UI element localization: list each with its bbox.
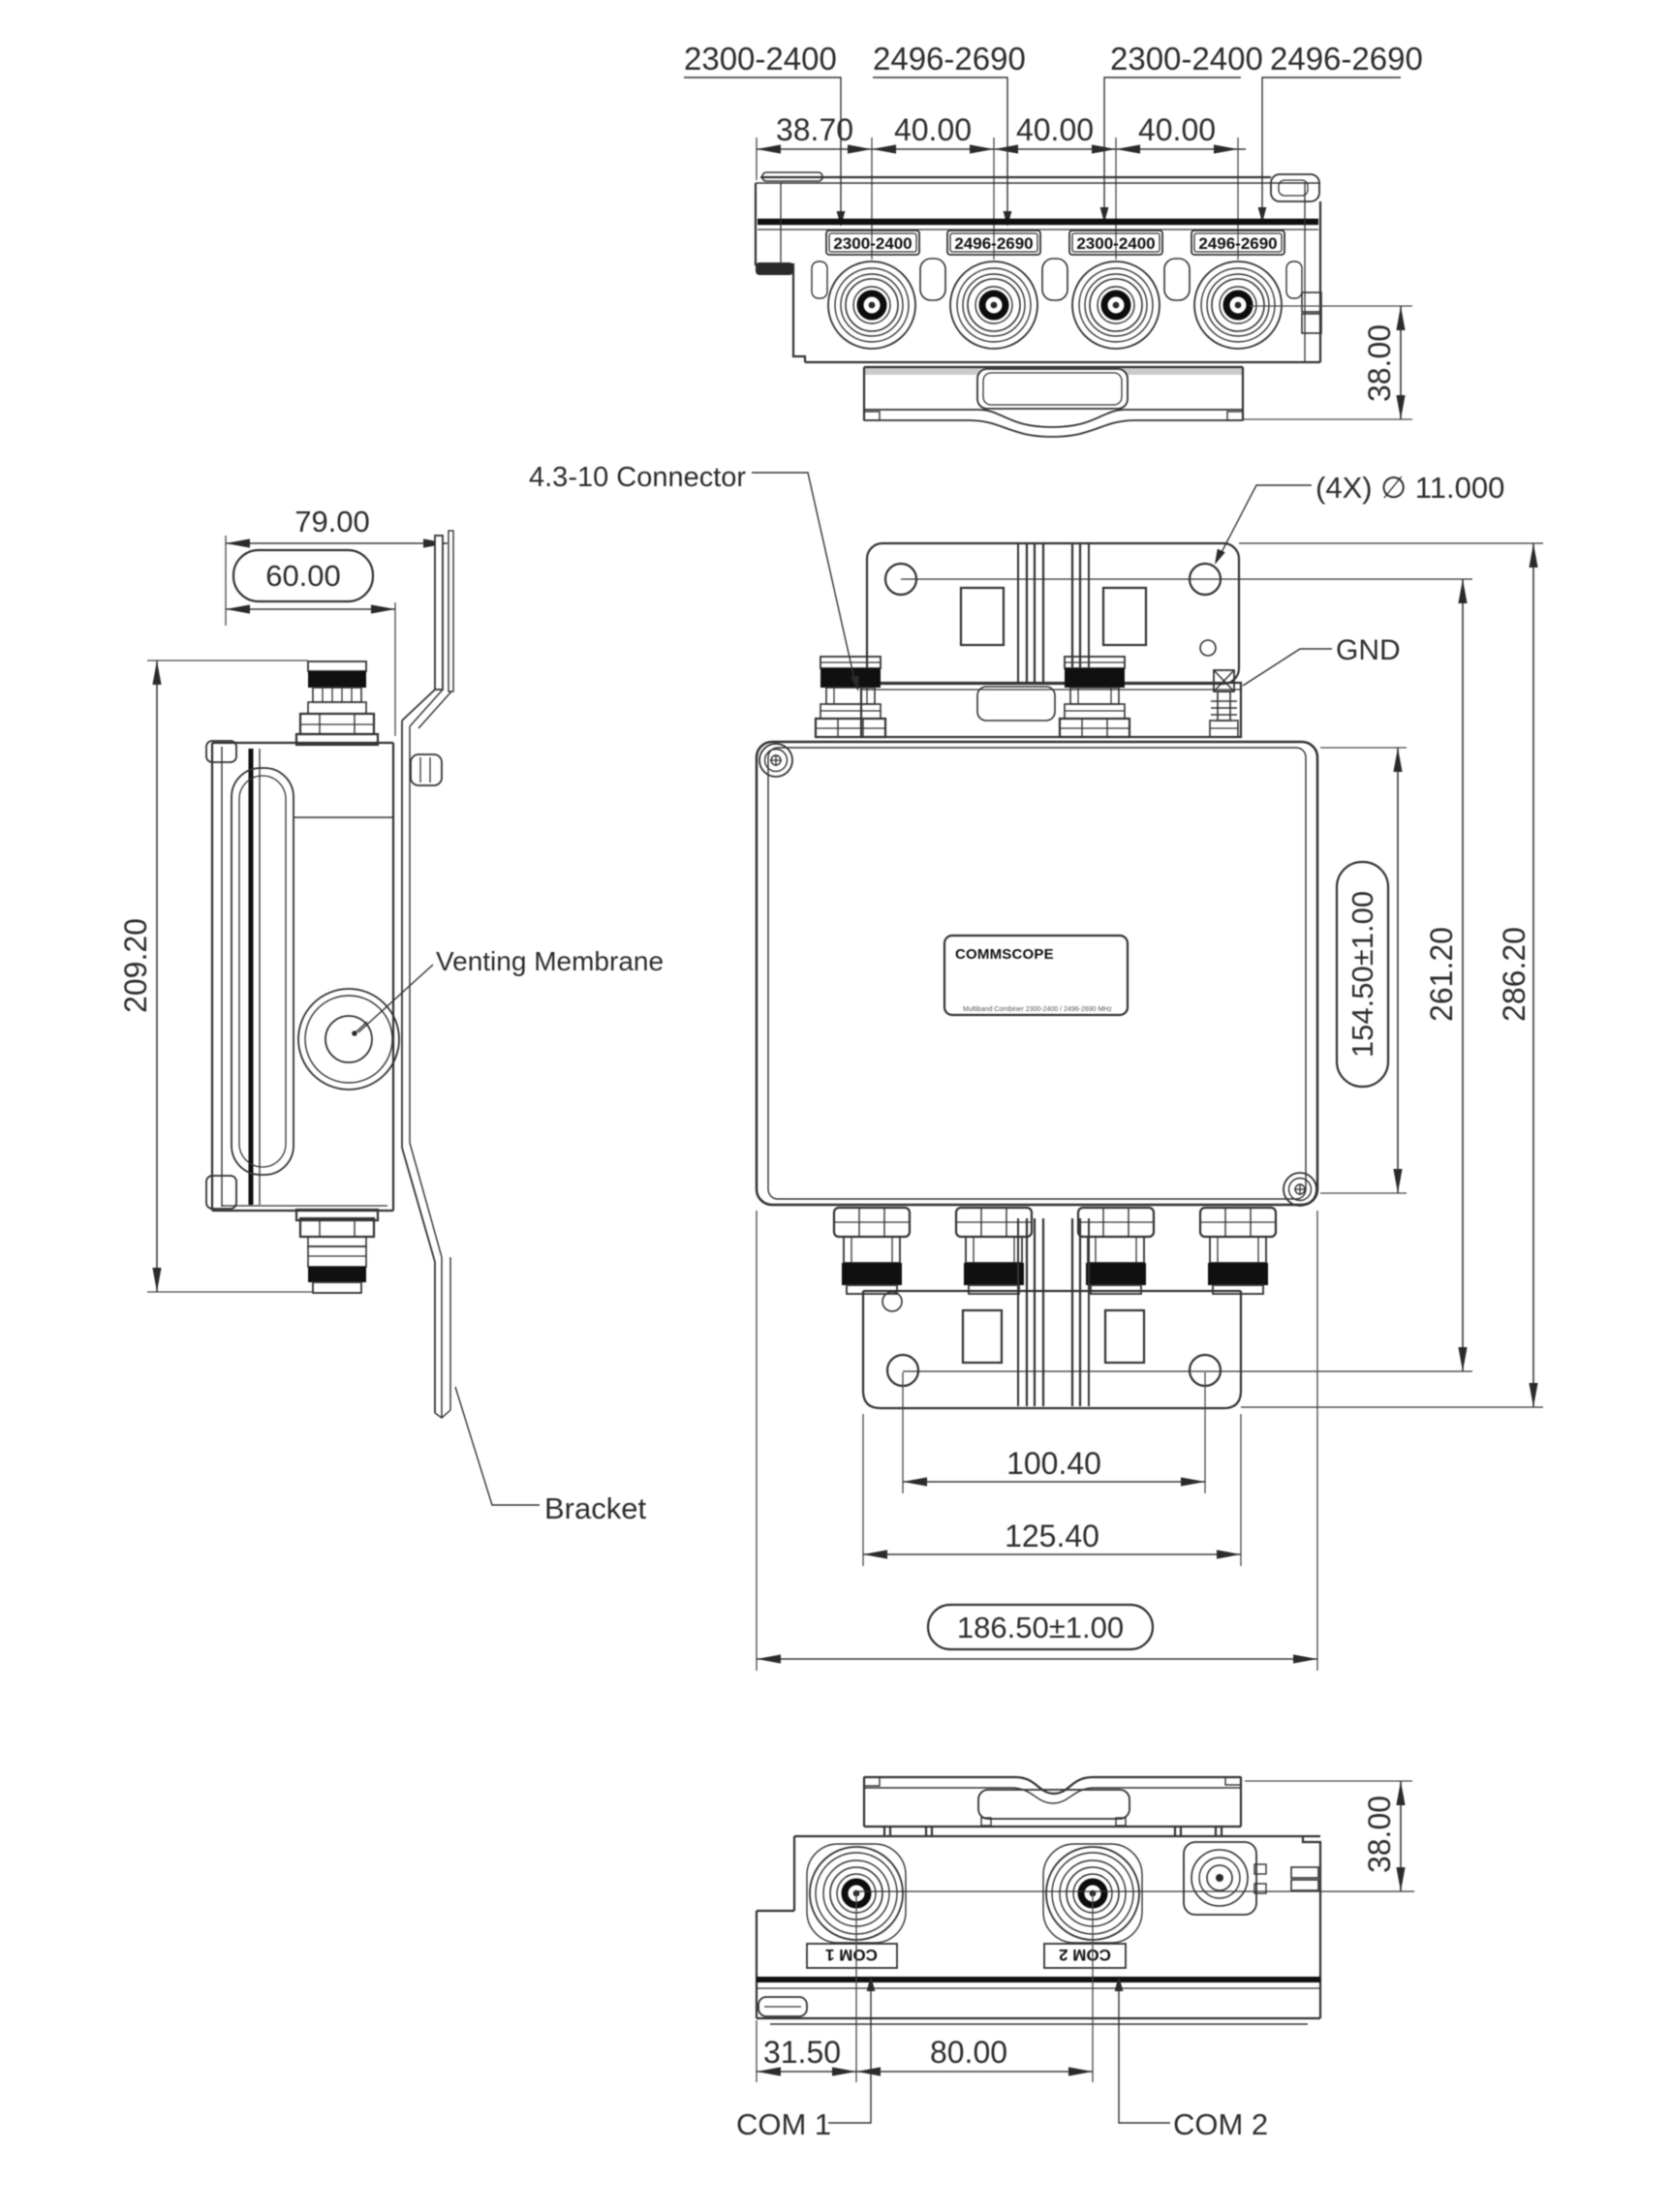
svg-text:125.40: 125.40 [1005, 1519, 1099, 1553]
svg-text:GND: GND [1336, 634, 1401, 666]
svg-text:40.00: 40.00 [894, 112, 972, 147]
svg-text:79.00: 79.00 [294, 505, 370, 538]
svg-text:209.20: 209.20 [118, 918, 153, 1013]
svg-text:2300-2400: 2300-2400 [1110, 41, 1263, 77]
svg-text:2496-2690: 2496-2690 [954, 234, 1033, 253]
svg-text:38.00: 38.00 [1362, 324, 1397, 402]
svg-text:COM 1: COM 1 [736, 2107, 831, 2141]
svg-text:4.3-10 Connector: 4.3-10 Connector [529, 462, 746, 493]
svg-text:Bracket: Bracket [544, 1491, 646, 1525]
svg-text:186.50±1.00: 186.50±1.00 [957, 1611, 1124, 1644]
svg-text:2496-2690: 2496-2690 [1198, 234, 1277, 253]
svg-text:154.50±1.00: 154.50±1.00 [1346, 891, 1379, 1058]
svg-text:(4X) ∅ 11.000: (4X) ∅ 11.000 [1315, 471, 1504, 505]
svg-text:40.00: 40.00 [1138, 112, 1216, 147]
svg-text:2300-2400: 2300-2400 [1076, 234, 1155, 253]
svg-text:COM 1: COM 1 [825, 1946, 878, 1964]
svg-text:COMMSCOPE: COMMSCOPE [955, 946, 1054, 963]
svg-text:COM 2: COM 2 [1173, 2107, 1268, 2141]
svg-text:2300-2400: 2300-2400 [684, 41, 837, 77]
svg-text:100.40: 100.40 [1006, 1446, 1101, 1481]
svg-text:2496-2690: 2496-2690 [1270, 41, 1423, 77]
svg-text:31.50: 31.50 [763, 2035, 841, 2070]
svg-text:COM 2: COM 2 [1059, 1946, 1111, 1964]
svg-text:Multiband Combiner 2300-2400 /: Multiband Combiner 2300-2400 / 2496-2690… [963, 1006, 1112, 1013]
svg-text:38.00: 38.00 [1362, 1796, 1397, 1873]
svg-text:40.00: 40.00 [1016, 112, 1094, 147]
svg-text:286.20: 286.20 [1497, 927, 1532, 1022]
svg-text:Venting Membrane: Venting Membrane [436, 946, 664, 976]
svg-text:2496-2690: 2496-2690 [873, 41, 1026, 77]
svg-text:2300-2400: 2300-2400 [833, 234, 912, 253]
svg-text:80.00: 80.00 [930, 2035, 1007, 2070]
svg-text:60.00: 60.00 [265, 559, 341, 593]
svg-text:261.20: 261.20 [1424, 927, 1459, 1022]
svg-text:38.70: 38.70 [776, 112, 853, 147]
